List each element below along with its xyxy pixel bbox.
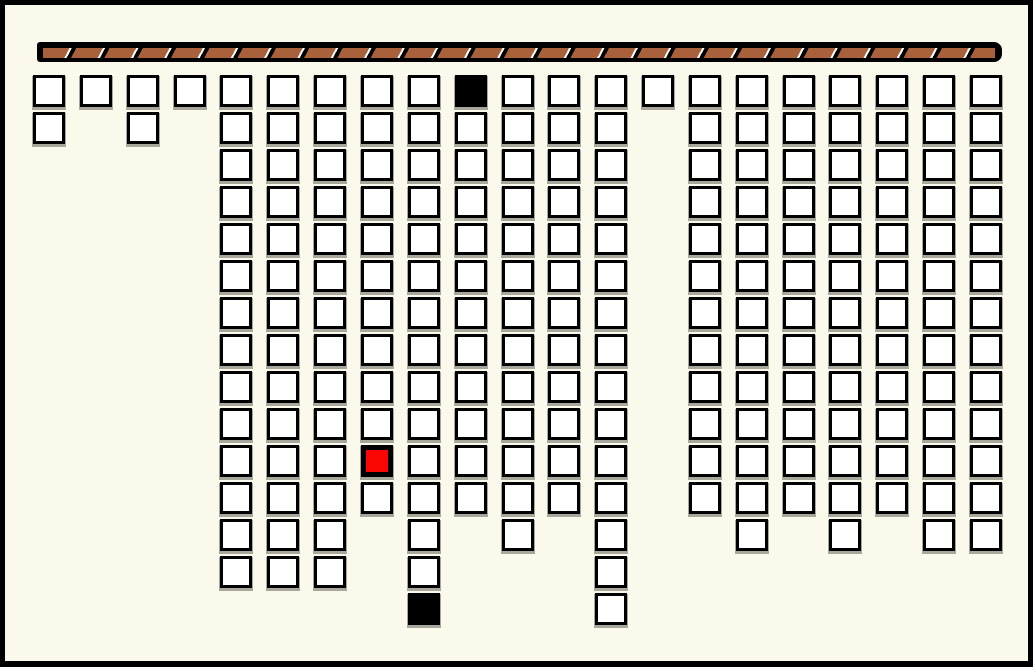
cell[interactable] xyxy=(829,334,861,366)
cell[interactable] xyxy=(783,112,815,144)
cell[interactable] xyxy=(923,75,955,107)
cell[interactable] xyxy=(829,223,861,255)
cell[interactable] xyxy=(876,75,908,107)
cell[interactable] xyxy=(876,186,908,218)
cell[interactable] xyxy=(970,149,1002,181)
cell[interactable] xyxy=(455,186,487,218)
cell[interactable] xyxy=(314,297,346,329)
cell[interactable] xyxy=(689,112,721,144)
cell[interactable] xyxy=(783,445,815,477)
cell[interactable] xyxy=(829,260,861,292)
cell[interactable] xyxy=(267,482,299,514)
cell[interactable] xyxy=(548,297,580,329)
cell[interactable] xyxy=(689,260,721,292)
cell[interactable] xyxy=(80,75,112,107)
cell[interactable] xyxy=(548,334,580,366)
cell[interactable] xyxy=(408,482,440,514)
cell[interactable] xyxy=(267,223,299,255)
cell[interactable] xyxy=(876,334,908,366)
cell[interactable] xyxy=(783,186,815,218)
cell[interactable] xyxy=(595,519,627,551)
cell[interactable] xyxy=(455,482,487,514)
cell[interactable] xyxy=(314,556,346,588)
cell[interactable] xyxy=(923,186,955,218)
cell[interactable] xyxy=(502,408,534,440)
cell[interactable] xyxy=(548,260,580,292)
cell[interactable] xyxy=(220,334,252,366)
cell[interactable] xyxy=(408,149,440,181)
cell[interactable] xyxy=(502,482,534,514)
cell[interactable] xyxy=(970,112,1002,144)
cell[interactable] xyxy=(923,149,955,181)
cell[interactable] xyxy=(736,371,768,403)
cell[interactable] xyxy=(876,445,908,477)
cell[interactable] xyxy=(736,223,768,255)
cell[interactable] xyxy=(174,75,206,107)
cell[interactable] xyxy=(876,371,908,403)
cell[interactable] xyxy=(783,260,815,292)
cell[interactable] xyxy=(267,75,299,107)
cell[interactable] xyxy=(736,519,768,551)
cell[interactable] xyxy=(548,371,580,403)
cell[interactable] xyxy=(876,223,908,255)
cell[interactable] xyxy=(314,260,346,292)
cell[interactable] xyxy=(314,482,346,514)
cell[interactable] xyxy=(876,260,908,292)
cell[interactable] xyxy=(829,408,861,440)
cell[interactable] xyxy=(970,223,1002,255)
cell[interactable] xyxy=(502,112,534,144)
cell[interactable] xyxy=(689,334,721,366)
cell[interactable] xyxy=(689,445,721,477)
cell[interactable] xyxy=(220,223,252,255)
cell[interactable] xyxy=(970,519,1002,551)
cell[interactable] xyxy=(220,519,252,551)
cell[interactable] xyxy=(595,408,627,440)
cell[interactable] xyxy=(970,186,1002,218)
cell[interactable] xyxy=(314,223,346,255)
cell[interactable] xyxy=(127,75,159,107)
cell[interactable] xyxy=(361,112,393,144)
cell[interactable] xyxy=(220,297,252,329)
cell[interactable] xyxy=(970,334,1002,366)
cell[interactable] xyxy=(829,445,861,477)
cell[interactable] xyxy=(408,519,440,551)
app-window xyxy=(0,0,1033,667)
cell[interactable] xyxy=(361,297,393,329)
cell[interactable] xyxy=(548,445,580,477)
cell[interactable] xyxy=(408,260,440,292)
cell[interactable] xyxy=(455,149,487,181)
cell[interactable] xyxy=(783,297,815,329)
cell[interactable] xyxy=(267,408,299,440)
cell[interactable] xyxy=(267,556,299,588)
cell[interactable] xyxy=(502,334,534,366)
cell[interactable] xyxy=(408,75,440,107)
cell[interactable] xyxy=(876,112,908,144)
cell[interactable] xyxy=(923,223,955,255)
cell[interactable] xyxy=(408,297,440,329)
cell[interactable] xyxy=(595,371,627,403)
cell[interactable] xyxy=(548,112,580,144)
cell[interactable] xyxy=(33,75,65,107)
cell[interactable] xyxy=(595,445,627,477)
cell[interactable] xyxy=(455,334,487,366)
cell[interactable] xyxy=(455,112,487,144)
cell[interactable] xyxy=(829,149,861,181)
cell[interactable] xyxy=(876,297,908,329)
cell[interactable] xyxy=(783,223,815,255)
cell[interactable] xyxy=(783,482,815,514)
cell[interactable] xyxy=(923,112,955,144)
cell-red[interactable] xyxy=(361,445,393,477)
cell[interactable] xyxy=(783,371,815,403)
cell[interactable] xyxy=(220,482,252,514)
cell[interactable] xyxy=(408,186,440,218)
cell[interactable] xyxy=(548,75,580,107)
cell[interactable] xyxy=(923,371,955,403)
cell[interactable] xyxy=(548,149,580,181)
cell[interactable] xyxy=(267,334,299,366)
cell[interactable] xyxy=(220,260,252,292)
cell[interactable] xyxy=(361,223,393,255)
cell[interactable] xyxy=(502,519,534,551)
cell[interactable] xyxy=(689,408,721,440)
cell[interactable] xyxy=(595,334,627,366)
cell[interactable] xyxy=(220,371,252,403)
cell[interactable] xyxy=(595,75,627,107)
cell[interactable] xyxy=(455,445,487,477)
cell[interactable] xyxy=(689,297,721,329)
cell[interactable] xyxy=(736,75,768,107)
cell[interactable] xyxy=(455,223,487,255)
cell[interactable] xyxy=(689,223,721,255)
cell[interactable] xyxy=(829,371,861,403)
cell[interactable] xyxy=(502,260,534,292)
cell[interactable] xyxy=(595,482,627,514)
cell-black[interactable] xyxy=(455,75,487,107)
cell[interactable] xyxy=(267,371,299,403)
cell[interactable] xyxy=(689,186,721,218)
cell[interactable] xyxy=(220,186,252,218)
cell[interactable] xyxy=(736,408,768,440)
cell[interactable] xyxy=(314,149,346,181)
cell[interactable] xyxy=(502,186,534,218)
cell[interactable] xyxy=(876,482,908,514)
cell[interactable] xyxy=(455,297,487,329)
cell[interactable] xyxy=(829,75,861,107)
cell[interactable] xyxy=(923,334,955,366)
cell[interactable] xyxy=(736,260,768,292)
cell[interactable] xyxy=(595,223,627,255)
cell[interactable] xyxy=(33,112,65,144)
cell[interactable] xyxy=(970,482,1002,514)
cell[interactable] xyxy=(736,112,768,144)
cell[interactable] xyxy=(923,482,955,514)
cell[interactable] xyxy=(455,371,487,403)
cell[interactable] xyxy=(736,334,768,366)
cell[interactable] xyxy=(923,260,955,292)
cell[interactable] xyxy=(220,149,252,181)
cell[interactable] xyxy=(595,260,627,292)
cell[interactable] xyxy=(502,223,534,255)
cell[interactable] xyxy=(220,75,252,107)
cell[interactable] xyxy=(267,149,299,181)
cell[interactable] xyxy=(736,186,768,218)
cell[interactable] xyxy=(736,297,768,329)
cell[interactable] xyxy=(408,112,440,144)
cell[interactable] xyxy=(220,445,252,477)
cell[interactable] xyxy=(689,371,721,403)
cell[interactable] xyxy=(408,223,440,255)
cell[interactable] xyxy=(736,149,768,181)
cell[interactable] xyxy=(970,75,1002,107)
cell[interactable] xyxy=(783,408,815,440)
cell[interactable] xyxy=(314,112,346,144)
cell[interactable] xyxy=(642,75,674,107)
cell[interactable] xyxy=(548,408,580,440)
cell[interactable] xyxy=(455,260,487,292)
cell[interactable] xyxy=(408,556,440,588)
cell[interactable] xyxy=(127,112,159,144)
cell[interactable] xyxy=(595,593,627,625)
cell[interactable] xyxy=(314,408,346,440)
cell-black[interactable] xyxy=(408,593,440,625)
cell[interactable] xyxy=(736,482,768,514)
cell[interactable] xyxy=(314,334,346,366)
cell[interactable] xyxy=(595,297,627,329)
cell[interactable] xyxy=(502,371,534,403)
cell[interactable] xyxy=(314,445,346,477)
cell[interactable] xyxy=(970,445,1002,477)
cell[interactable] xyxy=(220,556,252,588)
cell[interactable] xyxy=(829,482,861,514)
cell[interactable] xyxy=(361,260,393,292)
cell[interactable] xyxy=(361,408,393,440)
cell[interactable] xyxy=(267,445,299,477)
cell[interactable] xyxy=(923,445,955,477)
cell[interactable] xyxy=(736,445,768,477)
cell[interactable] xyxy=(408,445,440,477)
cell[interactable] xyxy=(783,334,815,366)
cell[interactable] xyxy=(783,149,815,181)
cell[interactable] xyxy=(267,112,299,144)
cell[interactable] xyxy=(689,482,721,514)
cell[interactable] xyxy=(408,408,440,440)
cell[interactable] xyxy=(689,149,721,181)
cell[interactable] xyxy=(829,297,861,329)
cell[interactable] xyxy=(548,186,580,218)
cell[interactable] xyxy=(783,75,815,107)
cell[interactable] xyxy=(408,334,440,366)
cell[interactable] xyxy=(689,75,721,107)
cell[interactable] xyxy=(455,408,487,440)
cell[interactable] xyxy=(314,371,346,403)
cell[interactable] xyxy=(923,408,955,440)
cell[interactable] xyxy=(361,75,393,107)
cell[interactable] xyxy=(314,186,346,218)
cell[interactable] xyxy=(361,482,393,514)
cell[interactable] xyxy=(361,149,393,181)
cell[interactable] xyxy=(267,519,299,551)
cell[interactable] xyxy=(595,149,627,181)
cell[interactable] xyxy=(502,445,534,477)
cell[interactable] xyxy=(361,371,393,403)
cell[interactable] xyxy=(548,482,580,514)
cell[interactable] xyxy=(267,186,299,218)
cell[interactable] xyxy=(548,223,580,255)
cell[interactable] xyxy=(876,149,908,181)
cell[interactable] xyxy=(876,408,908,440)
board xyxy=(0,0,1033,667)
cell[interactable] xyxy=(502,75,534,107)
cell[interactable] xyxy=(220,408,252,440)
cell[interactable] xyxy=(267,260,299,292)
cell[interactable] xyxy=(408,371,440,403)
cell[interactable] xyxy=(970,371,1002,403)
cell[interactable] xyxy=(361,186,393,218)
cell[interactable] xyxy=(314,75,346,107)
cell[interactable] xyxy=(314,519,346,551)
cell[interactable] xyxy=(829,112,861,144)
cell[interactable] xyxy=(502,297,534,329)
cell[interactable] xyxy=(220,112,252,144)
cell[interactable] xyxy=(595,556,627,588)
cell[interactable] xyxy=(595,186,627,218)
cell[interactable] xyxy=(595,112,627,144)
cell[interactable] xyxy=(923,297,955,329)
cell[interactable] xyxy=(267,297,299,329)
cell[interactable] xyxy=(829,186,861,218)
cell[interactable] xyxy=(970,297,1002,329)
cell[interactable] xyxy=(361,334,393,366)
cell[interactable] xyxy=(970,260,1002,292)
cell[interactable] xyxy=(970,408,1002,440)
cell[interactable] xyxy=(502,149,534,181)
cell[interactable] xyxy=(829,519,861,551)
cell[interactable] xyxy=(923,519,955,551)
